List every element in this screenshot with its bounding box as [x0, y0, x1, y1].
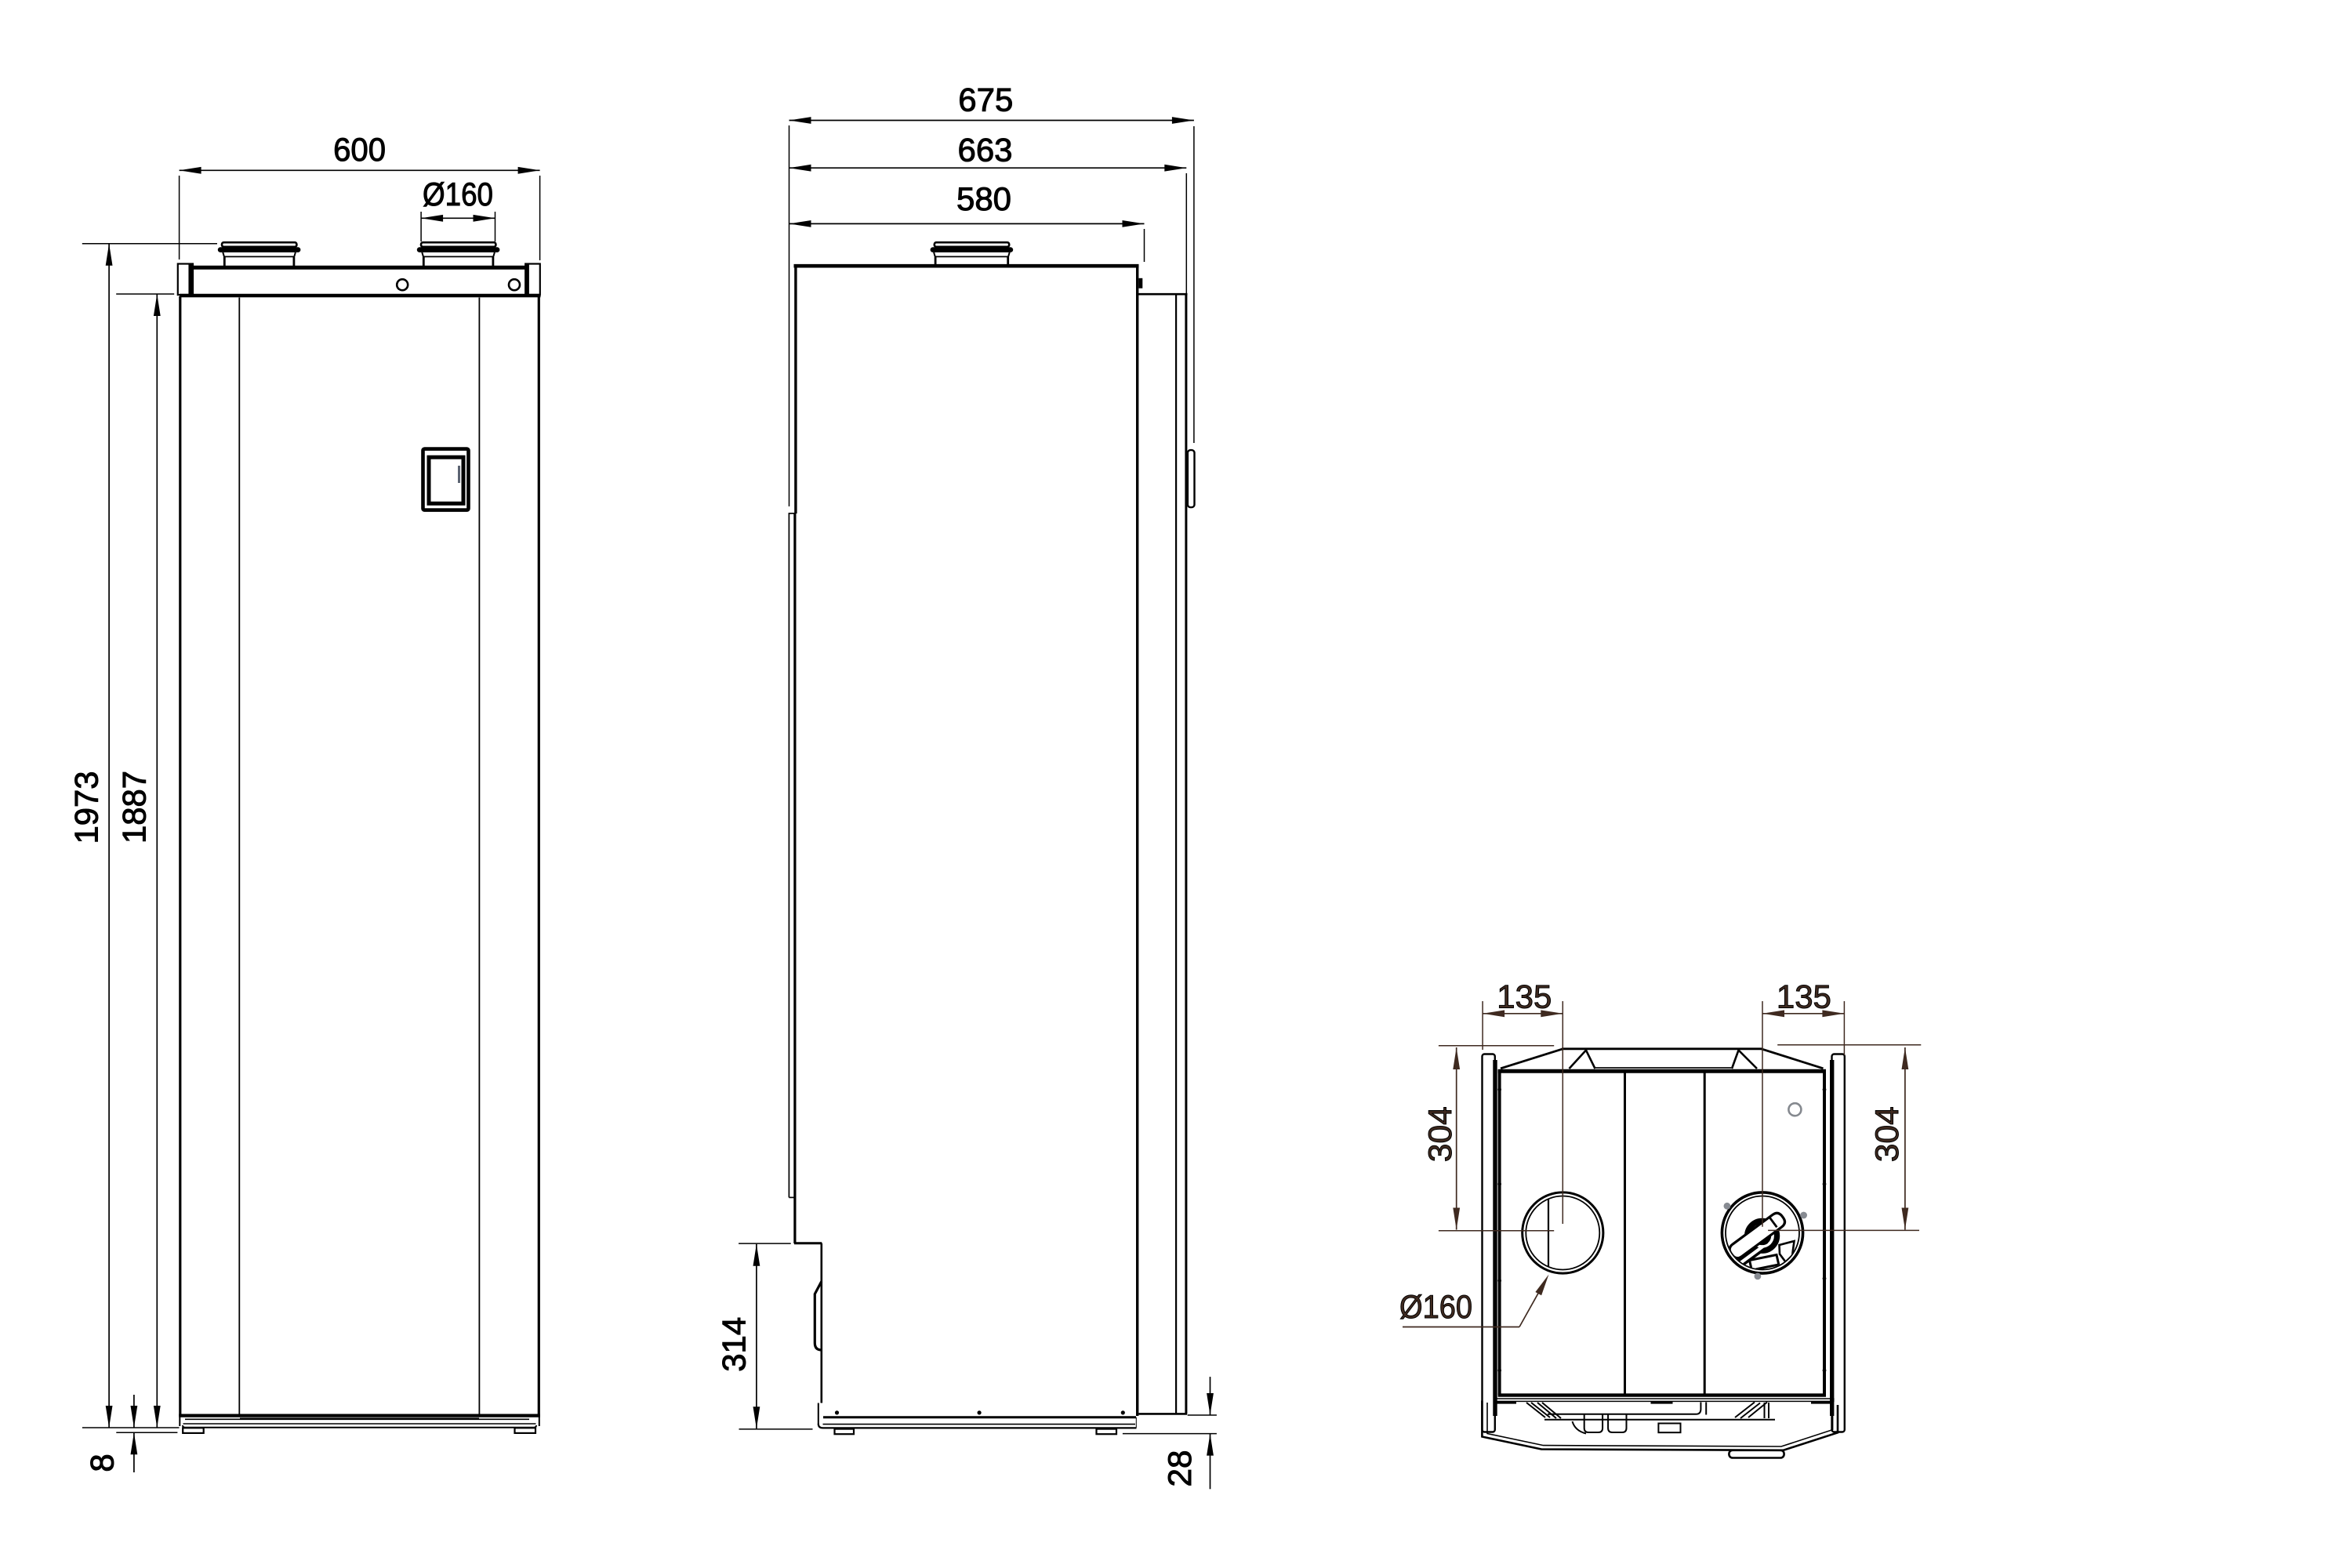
svg-text:304: 304 — [1421, 1106, 1458, 1162]
svg-text:135: 135 — [1497, 978, 1552, 1015]
svg-text:304: 304 — [1868, 1106, 1905, 1162]
svg-text:1973: 1973 — [68, 771, 105, 844]
svg-text:Ø160: Ø160 — [1399, 1288, 1472, 1325]
svg-text:663: 663 — [958, 132, 1013, 169]
svg-text:1887: 1887 — [116, 771, 153, 844]
svg-text:314: 314 — [716, 1317, 753, 1372]
svg-text:135: 135 — [1777, 978, 1831, 1015]
svg-text:28: 28 — [1161, 1450, 1198, 1487]
svg-text:675: 675 — [958, 82, 1013, 118]
svg-text:580: 580 — [956, 180, 1011, 217]
svg-text:600: 600 — [333, 131, 386, 168]
svg-text:Ø160: Ø160 — [423, 176, 493, 212]
svg-text:8: 8 — [84, 1454, 121, 1472]
